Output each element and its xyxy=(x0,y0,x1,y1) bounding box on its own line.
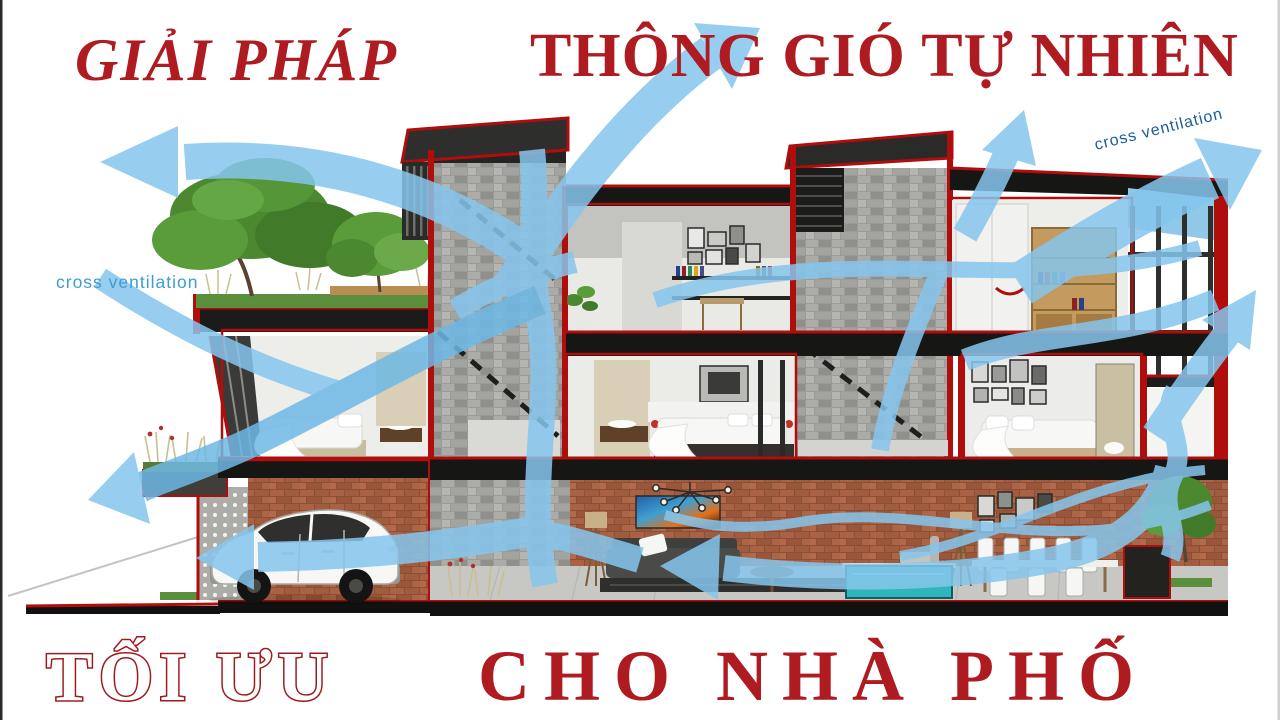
louver-panel xyxy=(794,168,844,232)
roof-garden xyxy=(193,265,465,334)
bed-center xyxy=(648,402,796,460)
title-left: GIẢI PHÁP xyxy=(75,27,398,93)
frame-edge-left xyxy=(0,0,3,720)
poster: GIẢI PHÁP THÔNG GIÓ TỰ NHIÊN cross venti… xyxy=(0,0,1280,720)
right-bedroom xyxy=(958,354,1147,462)
cross-ventilation-label-left: cross ventilation xyxy=(56,272,198,292)
ventilation-diagram: GIẢI PHÁP THÔNG GIÓ TỰ NHIÊN cross venti… xyxy=(0,0,1280,720)
footer-right: CHO NHÀ PHỐ xyxy=(478,635,1148,716)
title-right: THÔNG GIÓ TỰ NHIÊN xyxy=(530,22,1239,90)
footer-left: TỐI ƯU xyxy=(46,637,334,716)
bed-right xyxy=(973,416,1104,462)
center-bedroom xyxy=(566,354,796,460)
